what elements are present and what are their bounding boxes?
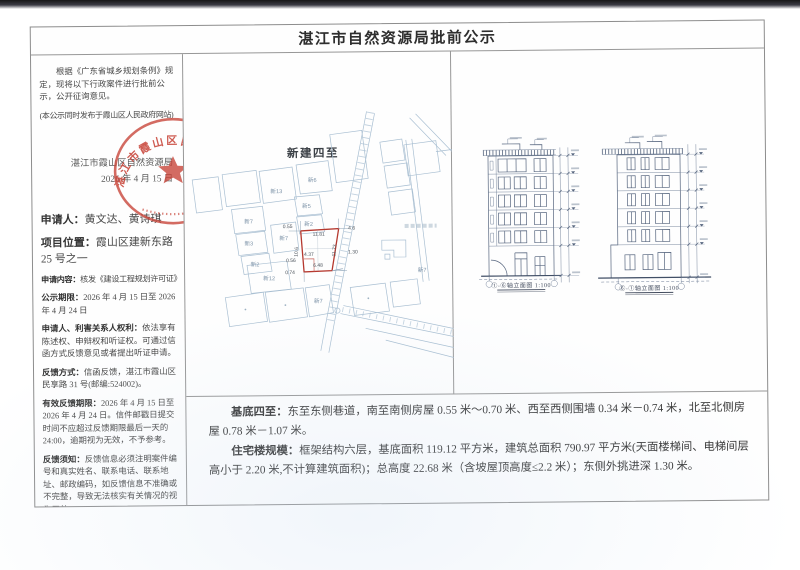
svg-text:11.73: 11.73 xyxy=(331,244,338,257)
field-label: 反馈须知： xyxy=(43,455,85,464)
summary-label: 基底四至： xyxy=(231,406,288,419)
elevations-cell: ①-⑥轴立面图 1:100 xyxy=(451,48,767,393)
page-title: 湛江市自然资源局批前公示 xyxy=(298,26,496,49)
site-plan-drawing: 新建四至 xyxy=(183,51,454,396)
elevation-1: ①-⑥轴立面图 1:100 xyxy=(478,137,580,292)
svg-text:新2: 新2 xyxy=(304,220,313,228)
elevation-2-dimensions xyxy=(680,144,708,283)
site-plan-dimensions: 0.55 11.81 10.6 4.37 0.56 6.48 0.74 11.7… xyxy=(283,223,358,276)
svg-text:新7: 新7 xyxy=(418,266,427,274)
field-label: 项目位置： xyxy=(41,236,96,249)
field-label: 申请内容： xyxy=(41,275,80,284)
field-feedback-deadline: 有效反馈期限：2026 年 4 月 15 日至 2026 年 4 月 24 日。… xyxy=(42,397,177,448)
seal-star-icon xyxy=(158,156,187,183)
summary-text: 东至东侧巷道，南至南侧房屋 0.55 米～0.70 米、西至西侧围墙 0.34 … xyxy=(209,402,746,438)
field-period: 公示期限：2026 年 4 月 15 日至 2026 年 4 月 24 日 xyxy=(41,291,176,317)
elevation-1-caption: ①-⑥轴立面图 1:100 xyxy=(491,281,551,290)
svg-text:0.56: 0.56 xyxy=(286,258,296,264)
field-location: 项目位置：霞山区建新东路 25 号之一 xyxy=(41,234,176,268)
field-label: 公示期限： xyxy=(41,293,83,302)
field-rights: 申请人、利害关系人权利：依法享有陈述权、申辩权和听证权。可通过信函方式反馈意见或… xyxy=(42,322,177,361)
field-content: 申请内容：核发《建设工程规划许可证》 xyxy=(41,273,176,287)
elevation-2-windows xyxy=(624,157,671,269)
elevation-2-caption: ⑥-①轴立面图 1:100 xyxy=(619,284,679,293)
svg-text:新2: 新2 xyxy=(251,260,260,268)
svg-text:0.55: 0.55 xyxy=(283,224,293,230)
field-label: 申请人、利害关系人权利： xyxy=(42,323,143,333)
field-feedback-notice: 反馈须知：反馈信息必须注明案件编号和真实姓名、联系电话、联系地址、邮政编码，如反… xyxy=(43,453,179,507)
field-value: 核发《建设工程规划许可证》 xyxy=(80,274,181,284)
summary-boundaries: 基底四至：东至东侧巷道，南至南侧房屋 0.55 米～0.70 米、西至西侧围墙 … xyxy=(208,399,749,442)
elevation-2: ⑥-①轴立面图 1:100 xyxy=(597,135,712,295)
svg-text:新7: 新7 xyxy=(314,297,323,305)
summary-cell: 基底四至：东至东侧巷道，南至南侧房屋 0.55 米～0.70 米、西至西侧围墙 … xyxy=(186,390,768,505)
summary-label: 住宅楼规模： xyxy=(231,445,299,458)
svg-text:湛江市霞山区自然资源局: 湛江市霞山区自然资源局 xyxy=(112,133,188,189)
notice-table: 湛江市自然资源局批前公示 根据《广东省城乡规划条例》规定，现将以下行政案件进行批… xyxy=(30,19,770,507)
svg-text:新7: 新7 xyxy=(279,234,288,242)
elevation-1-dimensions xyxy=(553,147,580,282)
svg-text:新7: 新7 xyxy=(244,217,253,225)
official-seal: 湛江市霞山区自然资源局 xyxy=(110,114,188,229)
summary-building-scale: 住宅楼规模：框架结构六层，基底面积 119.12 平方米，建筑总面积 790.9… xyxy=(209,438,750,481)
field-label: 反馈方式： xyxy=(42,368,84,377)
elevation-1-windows xyxy=(490,161,547,244)
svg-text:新12: 新12 xyxy=(263,274,275,282)
svg-text:4.6: 4.6 xyxy=(348,225,355,231)
svg-text:新6: 新6 xyxy=(308,176,317,184)
svg-text:新3: 新3 xyxy=(244,239,253,247)
elevation-drawings: ①-⑥轴立面图 1:100 xyxy=(451,48,767,393)
svg-text:1.30: 1.30 xyxy=(348,249,358,255)
svg-text:11.81: 11.81 xyxy=(313,232,325,238)
svg-text:新13: 新13 xyxy=(270,187,282,195)
site-plan-cell: 新建四至 xyxy=(183,51,454,396)
left-column: 根据《广东省城乡规划条例》规定，现将以下行政案件进行批前公示，公开征询意见。 (… xyxy=(31,54,187,506)
intro-paragraph: 根据《广东省城乡规划条例》规定，现将以下行政案件进行批前公示，公开征询意见。 xyxy=(39,65,174,104)
svg-text:新5: 新5 xyxy=(302,202,311,210)
svg-text:10.6: 10.6 xyxy=(294,247,301,257)
scan-top-edge xyxy=(0,0,800,9)
field-feedback-method: 反馈方式：信函反馈，湛江市霞山区民享路 31 号(邮编:524002)。 xyxy=(42,366,177,392)
seal-text: 湛江市霞山区自然资源局 xyxy=(112,133,188,189)
svg-text:4.37: 4.37 xyxy=(304,252,314,258)
svg-text:6.48: 6.48 xyxy=(313,263,323,269)
field-label: 申请人： xyxy=(41,214,85,226)
field-label: 有效反馈期限： xyxy=(42,398,101,408)
seal-serial-marks xyxy=(142,209,187,215)
svg-text:0.74: 0.74 xyxy=(285,270,295,276)
